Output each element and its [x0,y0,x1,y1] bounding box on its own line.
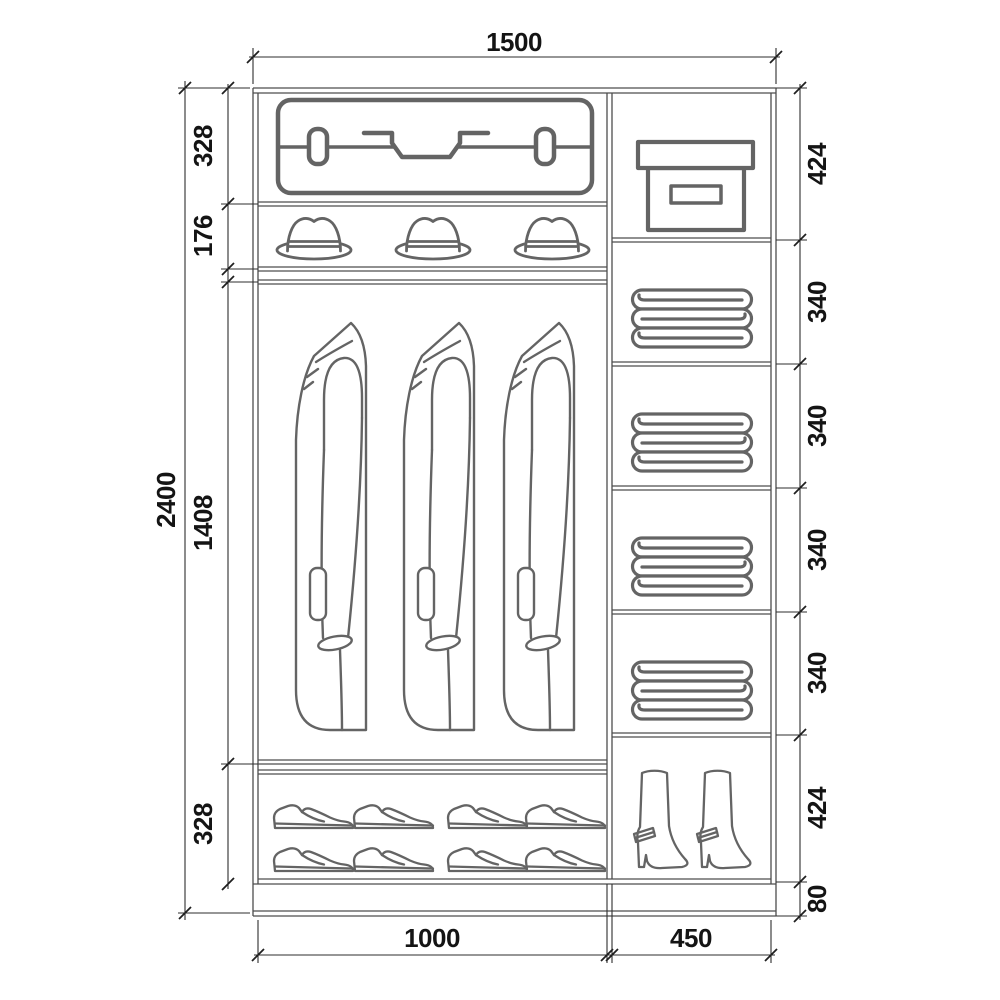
dimension-bottom-widths: 1000 450 [252,884,777,963]
dim-overall-height: 2400 [151,472,181,528]
dim-left-section-1: 328 [188,125,218,167]
dim-right-section-6: 424 [802,786,832,829]
dim-left-section-4: 328 [188,803,218,845]
dress-shoe-icon [526,848,605,871]
suitcase-icon [278,100,592,193]
dim-right-section-7: 80 [802,885,832,913]
high-heel-boot-icon [697,771,750,868]
dimension-right-sections: 424 340 340 340 340 424 80 [776,82,832,922]
dim-right-section-1: 424 [802,142,832,185]
folded-linen-icon [633,414,752,471]
dimension-left-sections: 328 176 1408 328 [188,82,258,890]
dim-right-section-3: 340 [802,405,832,447]
hanging-coat-icon [504,323,574,730]
fedora-hat-icon [515,218,589,259]
wardrobe-diagram: 1500 2400 328 176 1408 328 [0,0,1000,1000]
folded-linen-icon [633,662,752,719]
dress-shoe-icon [526,805,605,828]
dim-right-section-4: 340 [802,529,832,571]
storage-box-icon [638,142,753,230]
folded-linen-icon [633,538,752,595]
fedora-hat-icon [277,218,351,259]
dress-shoe-icon [274,805,353,828]
dim-left-section-3: 1408 [188,495,218,551]
dim-right-section-2: 340 [802,281,832,323]
dim-right-bay-width: 450 [670,923,712,953]
hanging-coat-icon [296,323,366,730]
dim-overall-width: 1500 [486,27,542,57]
dim-left-bay-width: 1000 [404,923,460,953]
dimension-top-width: 1500 [247,27,782,84]
dress-shoe-icon [274,848,353,871]
dress-shoe-icon [448,848,527,871]
dim-right-section-5: 340 [802,652,832,694]
high-heel-boot-icon [634,771,687,868]
folded-linen-icon [633,290,752,347]
hanging-coat-icon [404,323,474,730]
dress-shoe-icon [354,848,433,871]
dim-left-section-2: 176 [188,215,218,257]
dress-shoe-icon [354,805,433,828]
fedora-hat-icon [396,218,470,259]
dress-shoe-icon [448,805,527,828]
